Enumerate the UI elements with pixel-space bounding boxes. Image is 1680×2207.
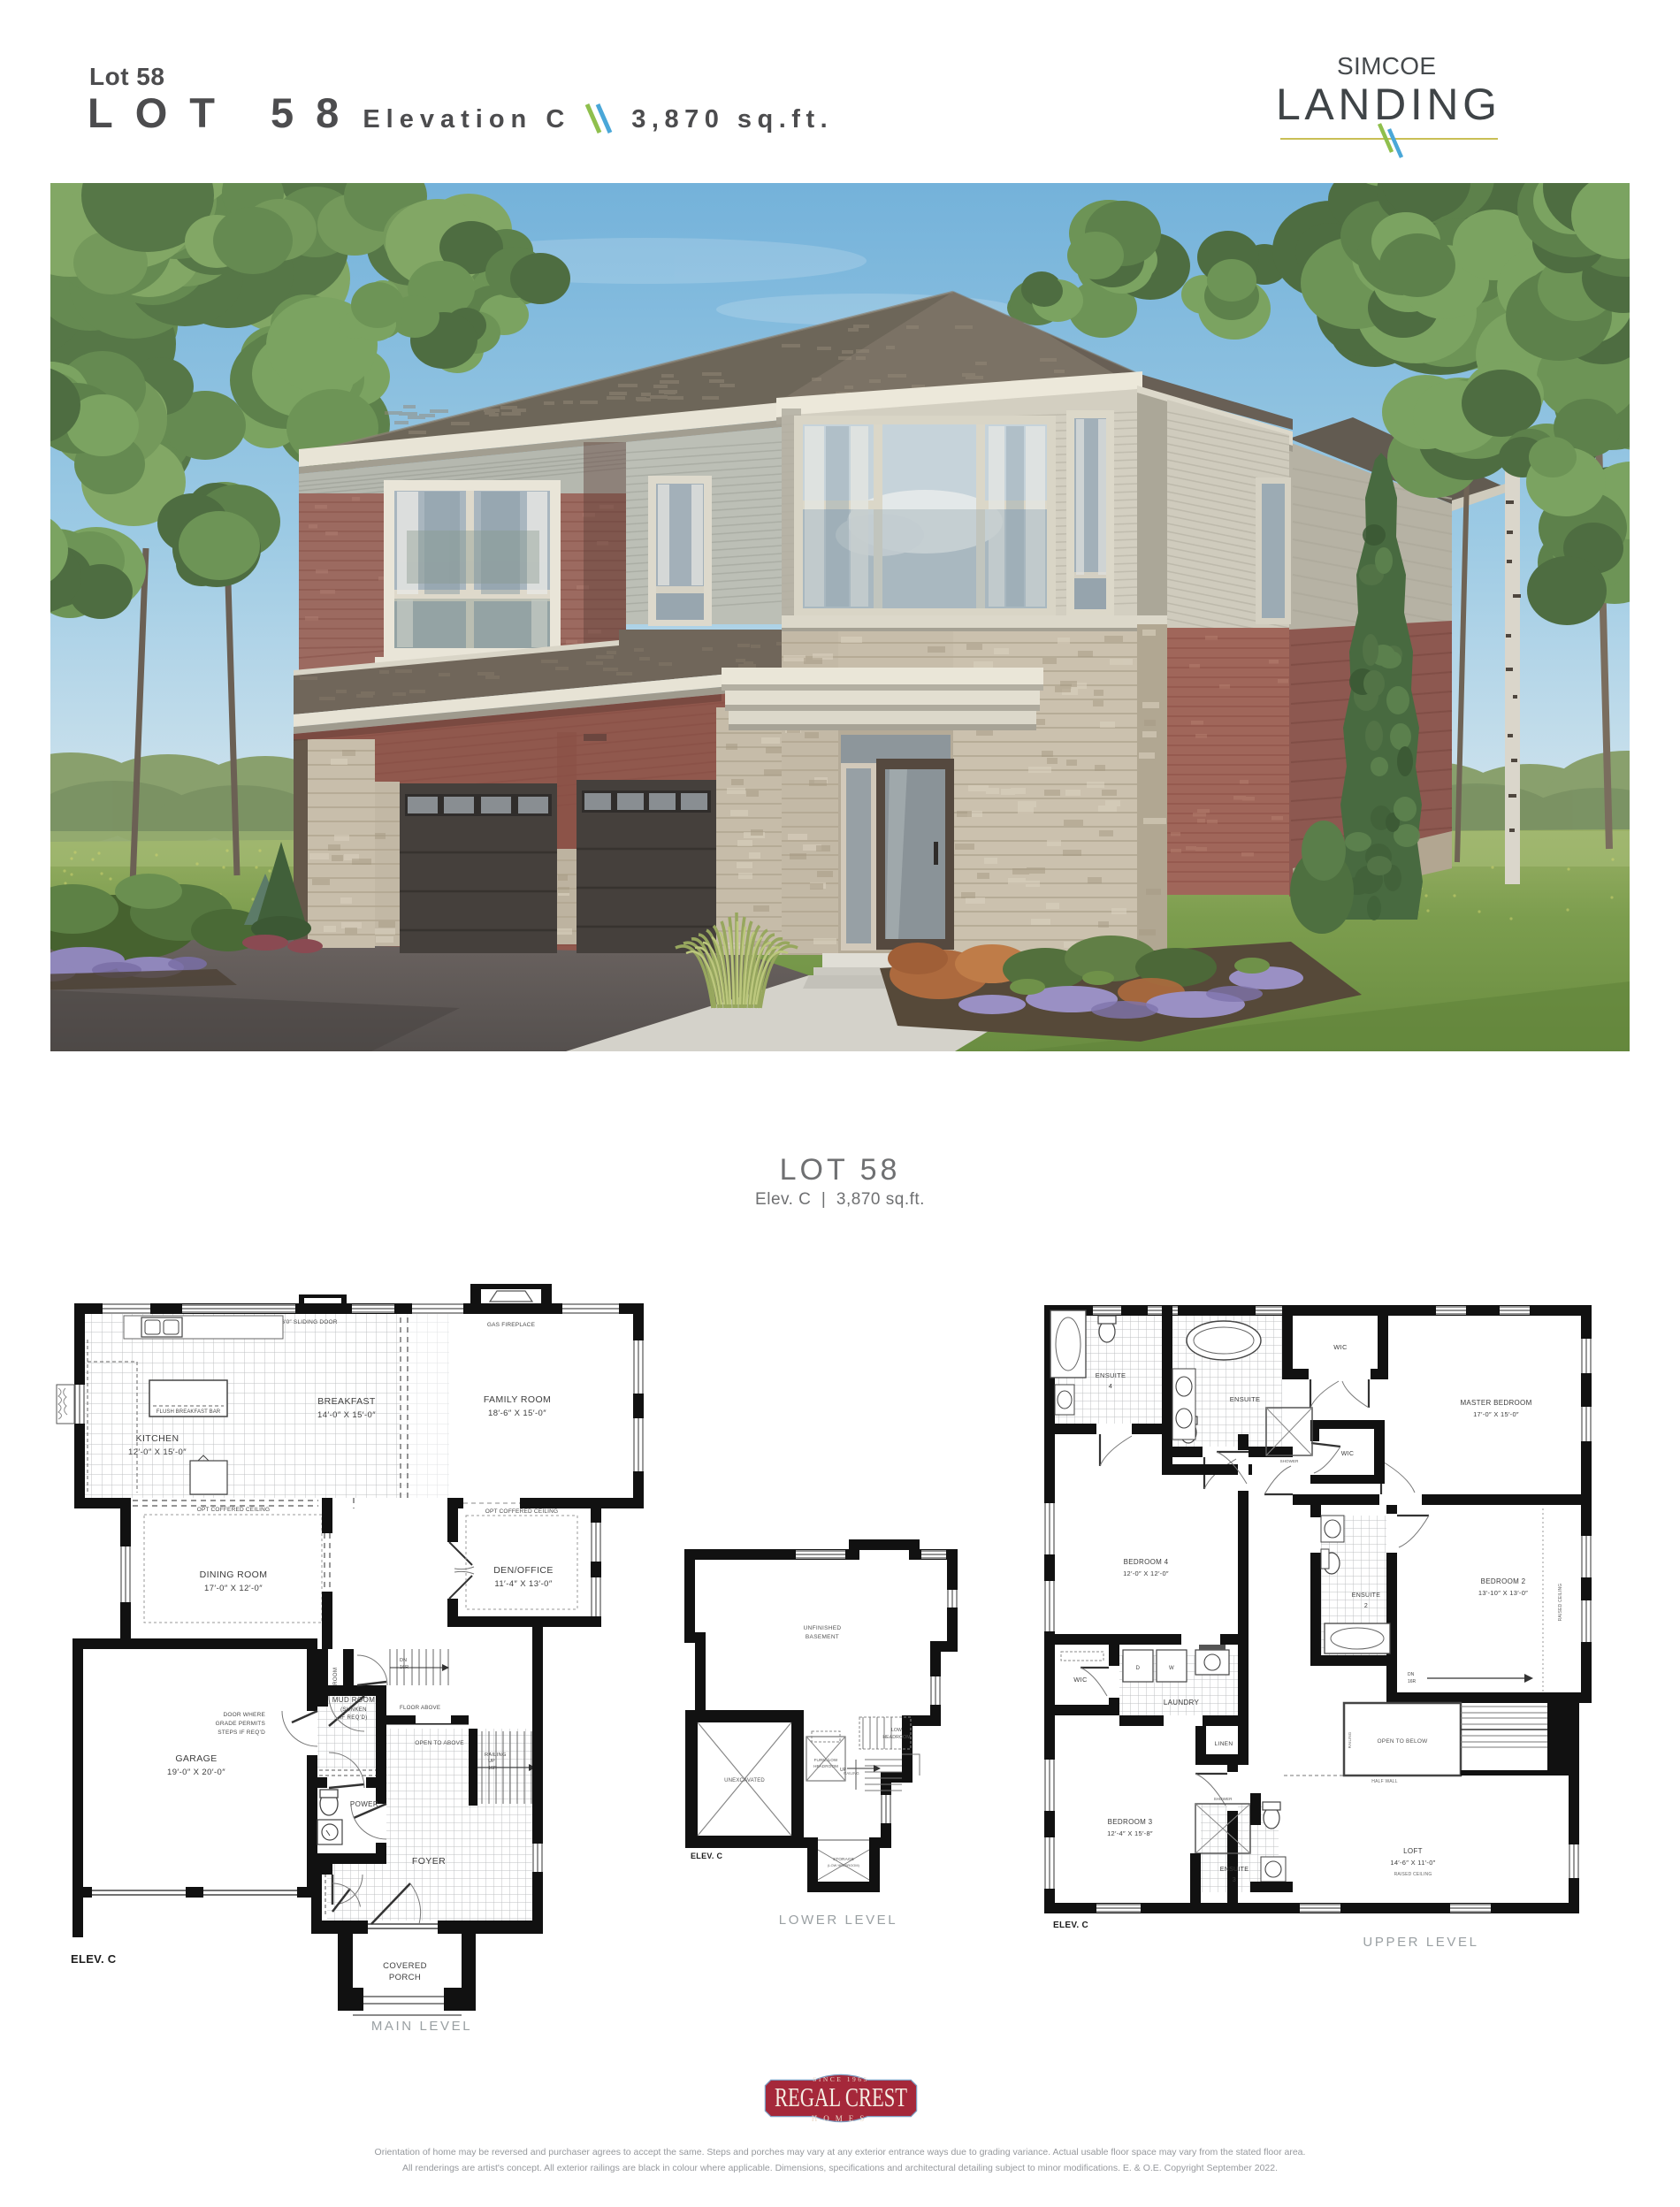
svg-text:IF REQ’D): IF REQ’D) <box>340 1715 367 1721</box>
svg-text:16R: 16R <box>400 1665 409 1670</box>
svg-text:6′0″ SLIDING DOOR: 6′0″ SLIDING DOOR <box>281 1319 337 1325</box>
svg-text:19′-0″ X 20′-0″: 19′-0″ X 20′-0″ <box>167 1768 225 1777</box>
svg-text:BEDROOM 2: BEDROOM 2 <box>1481 1577 1526 1585</box>
svg-text:LAUNDRY: LAUNDRY <box>1164 1699 1200 1707</box>
svg-text:LINEN: LINEN <box>1215 1741 1233 1747</box>
svg-text:KITCHEN: KITCHEN <box>136 1433 179 1444</box>
svg-text:ENSUITE: ENSUITE <box>1230 1395 1261 1403</box>
svg-text:ELEV. C: ELEV. C <box>71 1952 117 1966</box>
svg-text:WIC: WIC <box>1341 1451 1355 1457</box>
svg-text:GARAGE: GARAGE <box>175 1753 217 1764</box>
svg-text:POWER: POWER <box>350 1800 378 1808</box>
svg-text:REGAL CREST: REGAL CREST <box>775 2081 907 2112</box>
svg-text:ENSUITE: ENSUITE <box>1096 1371 1126 1379</box>
svg-text:HEADROOM: HEADROOM <box>882 1735 910 1740</box>
svg-text:RAILING: RAILING <box>844 1771 859 1776</box>
svg-text:HALF WALL: HALF WALL <box>1371 1779 1397 1784</box>
svg-text:SHOWER: SHOWER <box>1214 1797 1233 1801</box>
svg-text:18′-6″ X 15′-0″: 18′-6″ X 15′-0″ <box>488 1409 546 1418</box>
svg-text:LOFT: LOFT <box>1403 1847 1423 1855</box>
svg-text:ENSUITE: ENSUITE <box>1352 1592 1380 1599</box>
svg-text:GRADE PERMITS: GRADE PERMITS <box>216 1721 266 1727</box>
svg-text:DOOR WHERE: DOOR WHERE <box>224 1712 266 1718</box>
svg-text:RAISED CEILING: RAISED CEILING <box>1394 1872 1432 1877</box>
svg-text:FLOOR ABOVE: FLOOR ABOVE <box>400 1705 440 1711</box>
svg-text:BASEMENT: BASEMENT <box>806 1634 839 1640</box>
svg-text:MUD ROOM: MUD ROOM <box>332 1696 376 1704</box>
svg-text:OPT COFFERED CEILING: OPT COFFERED CEILING <box>485 1508 559 1515</box>
svg-text:16R: 16R <box>488 1766 497 1771</box>
svg-text:UP: UP <box>488 1759 495 1764</box>
svg-text:BEDROOM 4: BEDROOM 4 <box>1124 1558 1169 1566</box>
svg-text:STORAGE: STORAGE <box>833 1857 854 1862</box>
svg-text:4: 4 <box>1109 1382 1112 1390</box>
svg-text:WIC: WIC <box>1073 1676 1088 1684</box>
svg-text:12′-0″ X 12′-0″: 12′-0″ X 12′-0″ <box>1123 1569 1169 1577</box>
svg-text:12′-4″ X 15′-8″: 12′-4″ X 15′-8″ <box>1107 1829 1153 1837</box>
svg-text:FAMILY ROOM: FAMILY ROOM <box>484 1394 551 1405</box>
svg-text:ENSUITE: ENSUITE <box>1220 1867 1249 1873</box>
svg-text:GAS FIREPLACE: GAS FIREPLACE <box>487 1322 536 1328</box>
svg-text:RAISED CEILING: RAISED CEILING <box>1558 1584 1563 1622</box>
svg-text:ELEV. C: ELEV. C <box>691 1852 722 1860</box>
svg-text:W: W <box>1169 1666 1174 1671</box>
svg-text:DN: DN <box>1408 1672 1415 1677</box>
svg-text:OPEN TO ABOVE: OPEN TO ABOVE <box>415 1740 464 1746</box>
svg-text:11′-4″ X 13′-0″: 11′-4″ X 13′-0″ <box>494 1579 552 1589</box>
svg-text:LANDING: LANDING <box>1276 80 1502 129</box>
svg-text:17′-0″ X 12′-0″: 17′-0″ X 12′-0″ <box>204 1584 263 1593</box>
svg-text:RAILING: RAILING <box>485 1753 507 1758</box>
svg-text:SIMCOE: SIMCOE <box>1337 52 1439 80</box>
svg-text:FURN./LOW: FURN./LOW <box>814 1758 838 1762</box>
svg-text:HOMES: HOMES <box>812 2114 871 2123</box>
svg-text:WIC: WIC <box>1333 1343 1348 1351</box>
svg-text:3: 3 <box>1233 1877 1236 1883</box>
svg-text:14′-0″ X 15′-0″: 14′-0″ X 15′-0″ <box>317 1410 376 1420</box>
svg-text:LOWER LEVEL: LOWER LEVEL <box>779 1913 897 1928</box>
svg-text:UNEXCAVATED: UNEXCAVATED <box>724 1778 765 1783</box>
svg-text:(LOW HEADROOM): (LOW HEADROOM) <box>828 1864 860 1867</box>
svg-text:STEPS IF REQ’D: STEPS IF REQ’D <box>218 1730 265 1736</box>
svg-text:MAIN LEVEL: MAIN LEVEL <box>371 2019 472 2034</box>
svg-text:DINING ROOM: DINING ROOM <box>200 1569 268 1580</box>
svg-text:FLUSH BREAKFAST BAR: FLUSH BREAKFAST BAR <box>157 1409 221 1415</box>
svg-text:13′-10″ X 13′-0″: 13′-10″ X 13′-0″ <box>1478 1589 1528 1597</box>
svg-text:MASTER BEDROOM: MASTER BEDROOM <box>1460 1399 1531 1407</box>
svg-text:16R: 16R <box>1408 1679 1417 1684</box>
svg-text:RAILING: RAILING <box>1348 1731 1352 1748</box>
svg-text:14′-6″ X 11′-0″: 14′-6″ X 11′-0″ <box>1390 1859 1435 1867</box>
svg-text:COVERED: COVERED <box>383 1961 427 1971</box>
svg-text:BEDROOM 3: BEDROOM 3 <box>1108 1818 1153 1826</box>
svg-text:DEN/OFFICE: DEN/OFFICE <box>493 1565 554 1576</box>
svg-text:SHOWER: SHOWER <box>1280 1459 1300 1463</box>
svg-text:17′-0″ X 15′-0″: 17′-0″ X 15′-0″ <box>1473 1410 1519 1418</box>
svg-text:DN: DN <box>400 1658 407 1663</box>
svg-text:PORCH: PORCH <box>389 1973 421 1982</box>
svg-text:LOW: LOW <box>891 1728 902 1733</box>
svg-text:UPPER LEVEL: UPPER LEVEL <box>1363 1935 1478 1950</box>
svg-text:OPEN TO BELOW: OPEN TO BELOW <box>1378 1738 1429 1745</box>
svg-text:ELEV. C: ELEV. C <box>1053 1921 1088 1930</box>
svg-text:UNFINISHED: UNFINISHED <box>804 1625 842 1631</box>
svg-text:2: 2 <box>1364 1603 1368 1609</box>
svg-text:FOYER: FOYER <box>412 1856 446 1867</box>
svg-text:HEADROOM: HEADROOM <box>813 1764 838 1768</box>
svg-text:D: D <box>1136 1666 1141 1671</box>
svg-text:BREAKFAST: BREAKFAST <box>317 1396 376 1407</box>
svg-text:OPT COFFERED CEILING: OPT COFFERED CEILING <box>197 1507 271 1513</box>
